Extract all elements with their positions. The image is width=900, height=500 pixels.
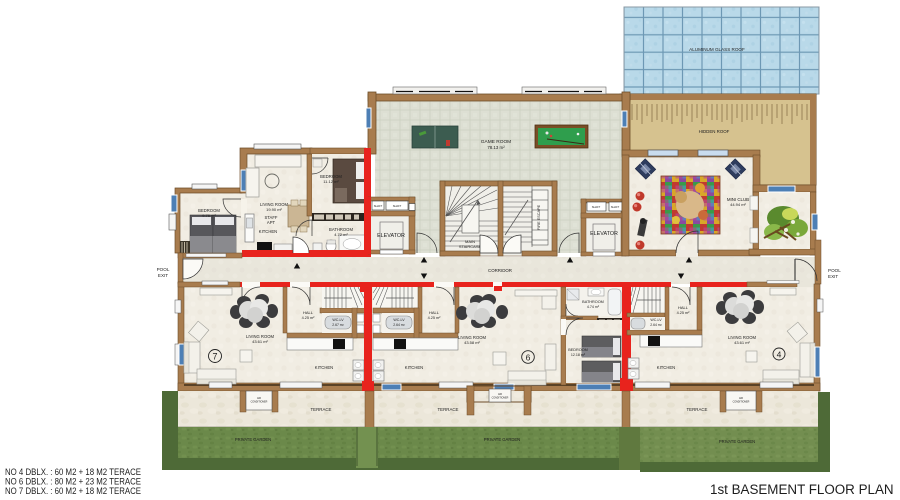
svg-text:WC-LV: WC-LV <box>650 318 662 322</box>
svg-text:STAIRCASE: STAIRCASE <box>459 244 482 249</box>
svg-text:2.67 m²: 2.67 m² <box>332 323 344 327</box>
svg-text:BEDROOM: BEDROOM <box>568 348 588 352</box>
svg-text:APT: APT <box>267 220 276 225</box>
svg-text:TERRACE: TERRACE <box>687 407 708 412</box>
svg-text:PRIVATE GARDEN: PRIVATE GARDEN <box>484 437 520 442</box>
svg-text:43.61 m²: 43.61 m² <box>252 339 268 344</box>
svg-text:KITCHEN: KITCHEN <box>657 365 675 370</box>
svg-text:NO 7 DBLX. : 60 M2 + 18 M2 TER: NO 7 DBLX. : 60 M2 + 18 M2 TERACE <box>5 486 141 496</box>
svg-text:CORRIDOR: CORRIDOR <box>488 268 512 273</box>
svg-text:HIDDEN ROOF: HIDDEN ROOF <box>699 129 730 134</box>
svg-text:SHAFT: SHAFT <box>611 205 620 209</box>
svg-text:KITCHEN: KITCHEN <box>259 229 277 234</box>
svg-text:6: 6 <box>526 353 531 363</box>
svg-text:NO 4 DBLX. : 60 M2 + 18 M2 TER: NO 4 DBLX. : 60 M2 + 18 M2 TERACE <box>5 467 141 477</box>
svg-text:HALL: HALL <box>303 310 314 315</box>
svg-text:EXIT: EXIT <box>158 273 168 278</box>
svg-text:PRIVATE GARDEN: PRIVATE GARDEN <box>235 437 271 442</box>
svg-text:43.58 m²: 43.58 m² <box>464 340 480 345</box>
svg-text:TERRACE: TERRACE <box>311 407 332 412</box>
svg-text:SHAFT: SHAFT <box>393 204 402 208</box>
svg-text:NO 6 DBLX. : 80 M2 + 23 M2 TER: NO 6 DBLX. : 80 M2 + 23 M2 TERACE <box>5 477 141 487</box>
svg-text:12.18 m²: 12.18 m² <box>571 353 586 357</box>
svg-text:78.13 m²: 78.13 m² <box>487 145 505 150</box>
svg-text:43.61 m²: 43.61 m² <box>734 340 750 345</box>
svg-text:4.25 m²: 4.25 m² <box>677 311 691 315</box>
svg-text:44.94 m²: 44.94 m² <box>730 202 746 207</box>
svg-text:2.64 m²: 2.64 m² <box>650 323 662 327</box>
svg-text:KITCHEN: KITCHEN <box>315 365 333 370</box>
svg-text:ELEVATOR: ELEVATOR <box>590 231 618 237</box>
svg-text:CONDITIONER: CONDITIONER <box>251 401 268 404</box>
svg-text:POOL: POOL <box>828 268 841 273</box>
svg-text:4.72 m²: 4.72 m² <box>334 232 348 237</box>
svg-text:TERRACE: TERRACE <box>438 407 459 412</box>
svg-text:9.76 m²: 9.76 m² <box>202 213 216 218</box>
svg-text:19.90 m²: 19.90 m² <box>266 207 282 212</box>
svg-text:KITCHEN: KITCHEN <box>405 365 423 370</box>
svg-text:FIRE ESCAPE: FIRE ESCAPE <box>537 204 541 230</box>
svg-text:CONDITIONER: CONDITIONER <box>492 397 509 400</box>
svg-text:BATHROOM: BATHROOM <box>582 300 604 304</box>
svg-text:4.74 m²: 4.74 m² <box>587 305 600 309</box>
svg-text:WC-LV: WC-LV <box>393 318 405 322</box>
svg-text:CONDITIONER: CONDITIONER <box>733 401 750 404</box>
svg-text:4: 4 <box>777 350 782 360</box>
svg-text:ALUMINUM GLASS ROOF: ALUMINUM GLASS ROOF <box>689 47 745 52</box>
svg-text:HALL: HALL <box>678 305 689 310</box>
svg-text:2.64 m²: 2.64 m² <box>393 323 405 327</box>
svg-text:7: 7 <box>212 352 217 362</box>
svg-text:4.25 m²: 4.25 m² <box>428 316 442 320</box>
svg-text:WC-LV: WC-LV <box>332 318 344 322</box>
svg-text:POOL: POOL <box>157 267 170 272</box>
svg-text:4.25 m²: 4.25 m² <box>302 316 316 320</box>
svg-text:ELEVATOR: ELEVATOR <box>377 233 405 239</box>
svg-text:SHAFT: SHAFT <box>374 204 383 208</box>
svg-text:PRIVATE GARDEN: PRIVATE GARDEN <box>719 439 755 444</box>
svg-text:HALL: HALL <box>429 310 440 315</box>
svg-text:1st BASEMENT FLOOR PLAN: 1st BASEMENT FLOOR PLAN <box>710 482 894 497</box>
svg-text:11.12 m²: 11.12 m² <box>323 179 339 184</box>
svg-text:SHAFT: SHAFT <box>592 205 601 209</box>
svg-text:EXIT: EXIT <box>828 274 838 279</box>
